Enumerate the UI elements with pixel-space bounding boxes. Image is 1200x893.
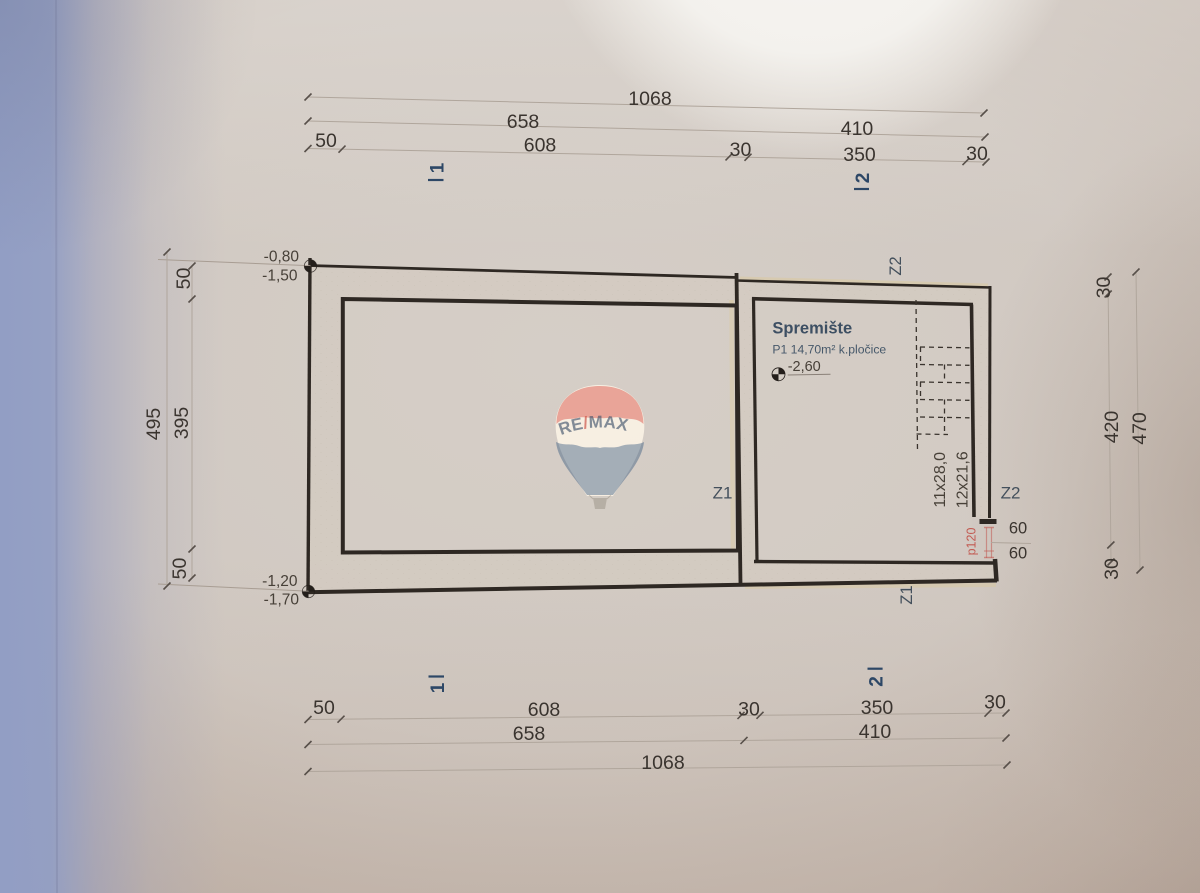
- svg-text:50: 50: [169, 558, 191, 580]
- svg-text:30: 30: [730, 139, 752, 161]
- svg-text:-2,60: -2,60: [788, 359, 821, 375]
- svg-text:1068: 1068: [641, 752, 684, 774]
- svg-text:Z1: Z1: [713, 484, 733, 503]
- svg-text:Z2: Z2: [1001, 484, 1021, 503]
- svg-text:395: 395: [171, 407, 193, 440]
- svg-text:1: 1: [428, 682, 449, 693]
- svg-text:Z1: Z1: [898, 585, 916, 604]
- svg-text:608: 608: [528, 699, 561, 721]
- svg-text:60: 60: [1009, 545, 1027, 563]
- svg-text:658: 658: [513, 723, 546, 745]
- svg-text:30: 30: [1101, 558, 1123, 580]
- svg-text:350: 350: [861, 697, 894, 719]
- svg-text:11x28,0: 11x28,0: [932, 452, 949, 508]
- svg-text:p120: p120: [965, 528, 979, 556]
- svg-text:1068: 1068: [628, 88, 671, 110]
- svg-text:495: 495: [143, 408, 165, 441]
- svg-text:30: 30: [966, 143, 988, 165]
- svg-text:30: 30: [984, 692, 1006, 714]
- svg-text:P1 14,70m² k.pločice: P1 14,70m² k.pločice: [772, 343, 886, 357]
- svg-text:30: 30: [738, 699, 760, 721]
- svg-text:Spremište: Spremište: [772, 320, 852, 338]
- svg-text:470: 470: [1129, 412, 1151, 445]
- svg-text:2: 2: [853, 173, 874, 184]
- svg-text:-1,20: -1,20: [262, 573, 298, 590]
- svg-text:30: 30: [1093, 277, 1115, 299]
- svg-text:420: 420: [1101, 411, 1123, 444]
- svg-text:50: 50: [173, 268, 195, 290]
- svg-text:1: 1: [427, 162, 448, 173]
- svg-text:60: 60: [1009, 520, 1027, 538]
- svg-text:-0,80: -0,80: [264, 249, 300, 266]
- svg-text:50: 50: [315, 130, 337, 152]
- svg-text:50: 50: [313, 697, 335, 719]
- svg-text:608: 608: [524, 135, 557, 157]
- svg-text:-1,70: -1,70: [264, 592, 300, 609]
- svg-text:2: 2: [867, 676, 888, 687]
- svg-text:350: 350: [843, 144, 876, 166]
- svg-text:410: 410: [841, 118, 874, 140]
- svg-text:-1,50: -1,50: [262, 268, 298, 285]
- svg-text:410: 410: [859, 721, 892, 743]
- svg-text:Z2: Z2: [887, 256, 905, 275]
- svg-text:12x21,6: 12x21,6: [955, 451, 972, 508]
- svg-text:658: 658: [507, 111, 540, 133]
